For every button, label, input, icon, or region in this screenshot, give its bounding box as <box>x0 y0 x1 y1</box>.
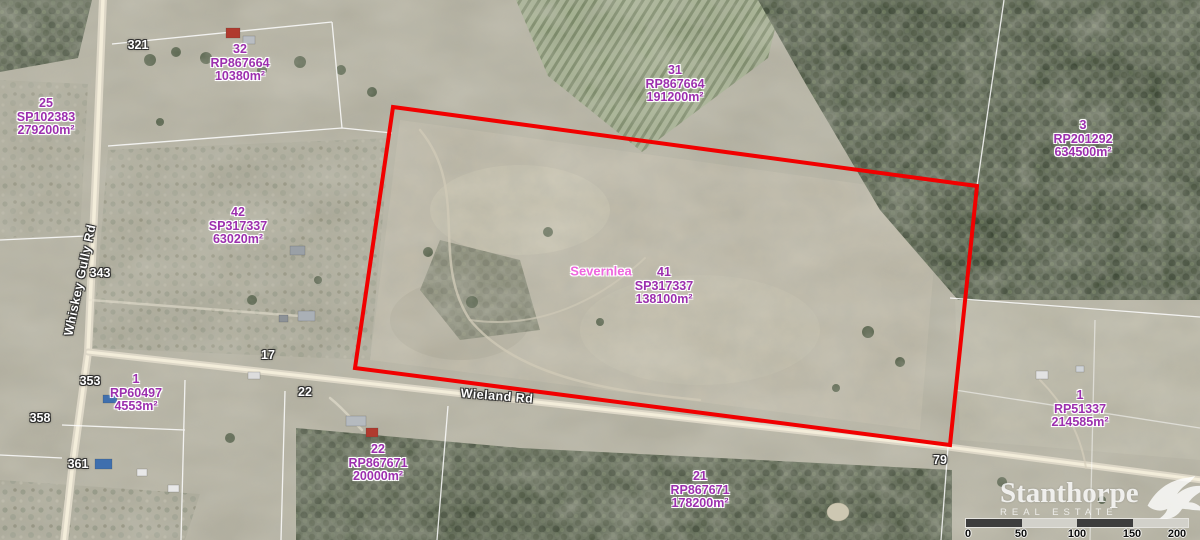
map-scalebar: 0 50 100 150 200 m <box>966 519 1190 539</box>
building <box>1036 371 1048 379</box>
lot-number: 32 <box>210 43 269 57</box>
lot-number: 3 <box>1053 119 1112 133</box>
parcel-label: 31 RP867664 191200m² <box>645 64 704 105</box>
building <box>1076 366 1084 372</box>
parcel-area: 10380m² <box>210 70 269 84</box>
dam <box>827 503 849 521</box>
lot-number: 22 <box>348 443 407 457</box>
plan-number: RP867671 <box>348 456 407 470</box>
plan-number: RP201292 <box>1053 132 1112 146</box>
scalebar-tick: 200 m <box>1168 528 1186 540</box>
address-marker: 79 <box>933 453 947 467</box>
agency-wordmark: Stanthorpe REAL ESTATE <box>1000 480 1139 518</box>
parcel-label: 32 RP867664 10380m² <box>210 43 269 84</box>
plan-number: RP60497 <box>110 386 162 400</box>
lot-number: 21 <box>670 470 729 484</box>
address-marker: 361 <box>68 457 89 471</box>
parcel-area: 20000m² <box>348 470 407 484</box>
building <box>298 311 315 321</box>
lot-number: 1 <box>110 373 162 387</box>
building <box>226 28 240 38</box>
lot-number: 41 <box>635 266 693 280</box>
parcel-area: 178200m² <box>670 497 729 511</box>
scalebar-tick: 100 <box>1068 528 1086 540</box>
address-marker: 17 <box>261 348 275 362</box>
lot-number: 1 <box>1052 389 1109 403</box>
parcel-area: 634500m² <box>1053 146 1112 160</box>
address-marker: 22 <box>298 385 312 399</box>
aerial-map-viewport: 32 RP867664 10380m² 25 SP102383 279200m²… <box>0 0 1200 540</box>
plan-number: RP867664 <box>645 77 704 91</box>
parcel-label: 3 RP201292 634500m² <box>1053 119 1112 160</box>
parcel-area: 63020m² <box>209 233 267 247</box>
scalebar-bar <box>966 519 1188 527</box>
plan-number: SP317337 <box>209 219 267 233</box>
building <box>95 459 112 469</box>
building <box>279 315 288 322</box>
plan-number: RP51337 <box>1052 402 1109 416</box>
lot-number: 25 <box>17 97 75 111</box>
parcel-area: 191200m² <box>645 91 704 105</box>
parcel-area: 214585m² <box>1052 416 1109 430</box>
parcel-area: 138100m² <box>635 293 693 307</box>
parcel-label: 21 RP867671 178200m² <box>670 470 729 511</box>
parcel-label-highlighted: 41 SP317337 138100m² <box>635 266 693 307</box>
agency-name: Stanthorpe <box>1000 480 1139 506</box>
scalebar-tick: 50 <box>1015 528 1027 540</box>
parcel-area: 4553m² <box>110 400 162 414</box>
parcel-label: 42 SP317337 63020m² <box>209 206 267 247</box>
parcel-label: 1 RP60497 4553m² <box>110 373 162 414</box>
scalebar-tick: 0 <box>965 528 971 540</box>
scalebar-segment <box>1077 519 1133 527</box>
lot-number: 42 <box>209 206 267 220</box>
plan-number: RP867671 <box>670 483 729 497</box>
plan-number: RP867664 <box>210 56 269 70</box>
eagle-icon <box>1141 472 1200 526</box>
address-marker: 343 <box>90 266 111 280</box>
scalebar-tick: 150 <box>1123 528 1141 540</box>
address-marker: 321 <box>128 38 149 52</box>
building <box>248 372 260 379</box>
plan-number: SP317337 <box>635 279 693 293</box>
parcel-label: 1 RP51337 214585m² <box>1052 389 1109 430</box>
building <box>290 246 305 255</box>
scalebar-segment <box>966 519 1022 527</box>
agency-watermark: Stanthorpe REAL ESTATE <box>1000 472 1200 526</box>
parcel-label: 25 SP102383 279200m² <box>17 97 75 138</box>
lot-number: 31 <box>645 64 704 78</box>
scalebar-ticks: 0 50 100 150 200 m <box>966 527 1190 539</box>
parcel-label: 22 RP867671 20000m² <box>348 443 407 484</box>
building <box>168 485 179 492</box>
address-marker: 353 <box>80 374 101 388</box>
building <box>137 469 147 476</box>
building <box>346 416 366 426</box>
locality-label: Severnlea <box>570 264 631 279</box>
plan-number: SP102383 <box>17 110 75 124</box>
parcel-area: 279200m² <box>17 124 75 138</box>
address-marker: 358 <box>30 411 51 425</box>
building <box>366 428 378 437</box>
